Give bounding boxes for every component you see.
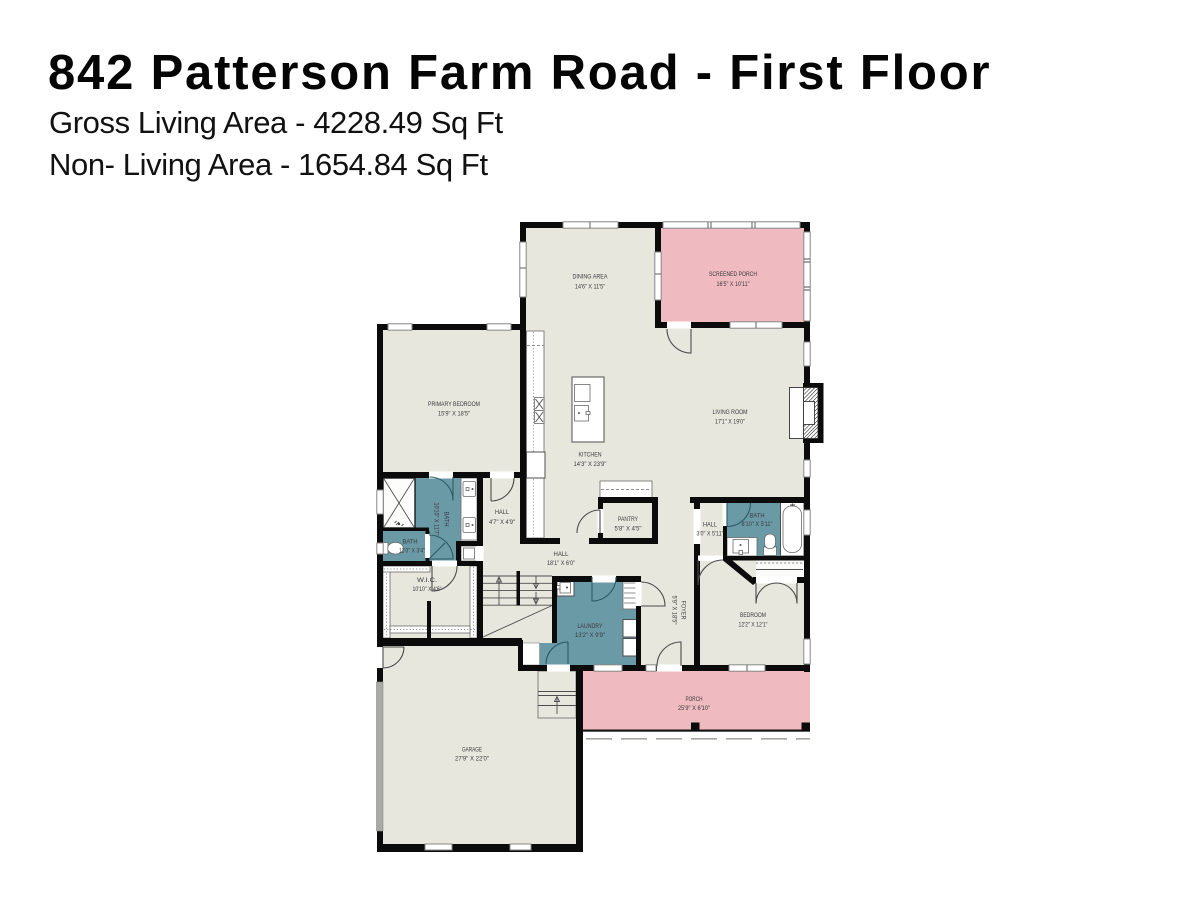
svg-text:HALL: HALL xyxy=(495,509,509,516)
svg-text:8'10" X 5'11": 8'10" X 5'11" xyxy=(742,521,773,528)
svg-text:842 Patterson Farm Road - Firs: 842 Patterson Farm Road - First Floor xyxy=(48,46,991,100)
svg-text:16'5" X 10'11": 16'5" X 10'11" xyxy=(717,281,750,288)
svg-text:25'9" X 6'10": 25'9" X 6'10" xyxy=(678,705,710,712)
svg-text:Gross Living Area - 4228.49 Sq: Gross Living Area - 4228.49 Sq Ft xyxy=(49,105,504,140)
svg-text:Non- Living Area - 1654.84 Sq: Non- Living Area - 1654.84 Sq Ft xyxy=(49,147,488,182)
svg-text:BATH: BATH xyxy=(443,512,450,527)
svg-text:DINING AREA: DINING AREA xyxy=(573,274,608,281)
svg-text:GARAGE: GARAGE xyxy=(462,747,482,754)
svg-text:15'9" X 18'5": 15'9" X 18'5" xyxy=(438,411,470,418)
svg-text:PORCH: PORCH xyxy=(686,696,703,703)
svg-text:LIVING ROOM: LIVING ROOM xyxy=(713,409,748,416)
svg-text:4'7" X 4'9": 4'7" X 4'9" xyxy=(489,519,515,526)
svg-text:FOYER: FOYER xyxy=(680,601,687,620)
svg-text:5'8" X 4'5": 5'8" X 4'5" xyxy=(615,526,642,533)
svg-text:10'10" X 4'6": 10'10" X 4'6" xyxy=(413,586,442,593)
svg-text:PRIMARY BEDROOM: PRIMARY BEDROOM xyxy=(428,401,480,408)
svg-text:18'1" X 6'0": 18'1" X 6'0" xyxy=(547,560,575,567)
svg-text:BATH: BATH xyxy=(403,539,418,546)
svg-text:W.I.C.: W.I.C. xyxy=(417,577,437,584)
svg-text:SCREENED PORCH: SCREENED PORCH xyxy=(709,271,757,278)
svg-text:BATH: BATH xyxy=(750,513,765,520)
svg-text:PANTRY: PANTRY xyxy=(618,516,638,523)
svg-text:HALL: HALL xyxy=(554,551,569,558)
svg-text:11'0" X 3'4": 11'0" X 3'4" xyxy=(399,548,425,555)
svg-text:14'6" X 11'5": 14'6" X 11'5" xyxy=(575,284,605,291)
svg-text:HALL: HALL xyxy=(703,522,717,529)
svg-text:14'3" X 23'9": 14'3" X 23'9" xyxy=(574,461,607,468)
svg-text:LAUNDRY: LAUNDRY xyxy=(578,623,603,630)
svg-text:BEDROOM: BEDROOM xyxy=(740,612,766,619)
svg-text:17'1" X 19'0": 17'1" X 19'0" xyxy=(715,419,745,426)
svg-text:12'2" X 12'1": 12'2" X 12'1" xyxy=(739,622,768,629)
svg-text:27'9" X 22'0": 27'9" X 22'0" xyxy=(455,756,489,763)
svg-text:KITCHEN: KITCHEN xyxy=(579,452,602,459)
svg-text:3'0" X 5'11": 3'0" X 5'11" xyxy=(697,531,724,538)
svg-text:13'2" X 9'9": 13'2" X 9'9" xyxy=(575,632,605,639)
svg-text:5'9" X 18'5": 5'9" X 18'5" xyxy=(671,596,678,625)
svg-text:10'10" X 11'7": 10'10" X 11'7" xyxy=(433,503,440,536)
